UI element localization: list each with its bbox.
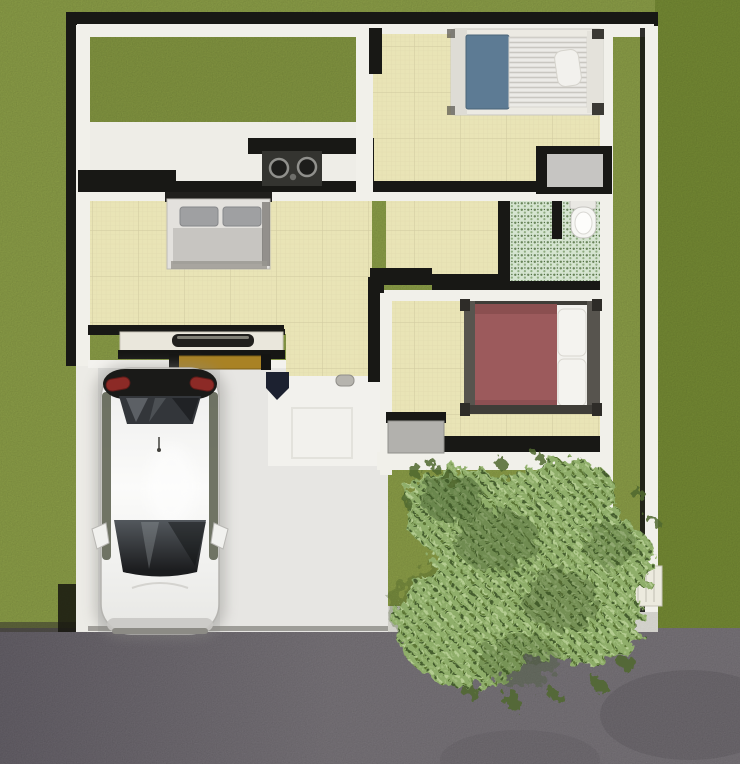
dresser — [536, 146, 612, 194]
bed-blue-blanket — [466, 35, 509, 109]
roof-highlight — [147, 444, 195, 528]
bed-blanket — [173, 228, 263, 264]
dresser-top — [547, 154, 603, 187]
bed-post — [592, 299, 602, 311]
fence-end-shadow — [58, 584, 76, 632]
bed-pillow — [180, 207, 218, 226]
entry-step — [336, 375, 354, 386]
bed-middle-bedroom — [165, 192, 272, 269]
antenna-base — [157, 448, 161, 452]
bed-post — [592, 103, 604, 115]
bathroom-partition — [552, 197, 562, 239]
floor-plan-render — [0, 0, 740, 764]
wall-center-white — [384, 290, 612, 301]
road-texture-light — [0, 628, 740, 764]
stove-knob-icon — [290, 174, 296, 180]
bed-rail-bottom — [464, 405, 600, 414]
bed-pillow — [558, 359, 586, 406]
bed-bottom-bedroom — [460, 299, 602, 416]
bed-rail-left — [464, 301, 475, 413]
front-bumper-shadow — [112, 628, 208, 634]
bed-edge-shadow — [262, 202, 270, 266]
stove — [262, 151, 322, 186]
wall-mid-step — [78, 170, 176, 183]
bed-foot-shadow — [171, 261, 267, 269]
bed-rail-right — [587, 301, 600, 413]
fence-left-shadow — [66, 14, 76, 366]
toilet — [570, 200, 596, 238]
bed-post — [460, 299, 470, 311]
wall-center-b — [432, 274, 500, 291]
bed-pillow — [554, 49, 583, 88]
hallway-floor-grid — [386, 200, 500, 274]
fence-top-shadow — [66, 12, 658, 25]
cabinet-body — [388, 421, 444, 453]
bed-pillow — [558, 309, 586, 356]
bed-post — [447, 29, 455, 38]
bed-post — [592, 29, 604, 39]
bed-pillow — [223, 207, 261, 226]
bed-red-blanket — [475, 304, 557, 410]
toilet-seat — [575, 212, 592, 234]
bench-leg — [261, 354, 271, 370]
blanket-fold — [475, 304, 557, 314]
tray-rim — [177, 336, 249, 339]
burner-icon — [270, 159, 288, 177]
bed-post — [460, 403, 470, 416]
bathroom — [498, 194, 612, 292]
wall-bedroom-left-shadow — [369, 28, 382, 74]
bed-post — [592, 403, 602, 416]
bed-post — [447, 106, 455, 115]
car — [92, 364, 228, 638]
tray — [172, 334, 254, 347]
burner-icon — [298, 158, 316, 176]
bed-footboard — [587, 31, 603, 113]
bed-headboard — [451, 29, 467, 115]
bed-top-bedroom — [447, 29, 604, 115]
cabinet — [386, 412, 446, 453]
